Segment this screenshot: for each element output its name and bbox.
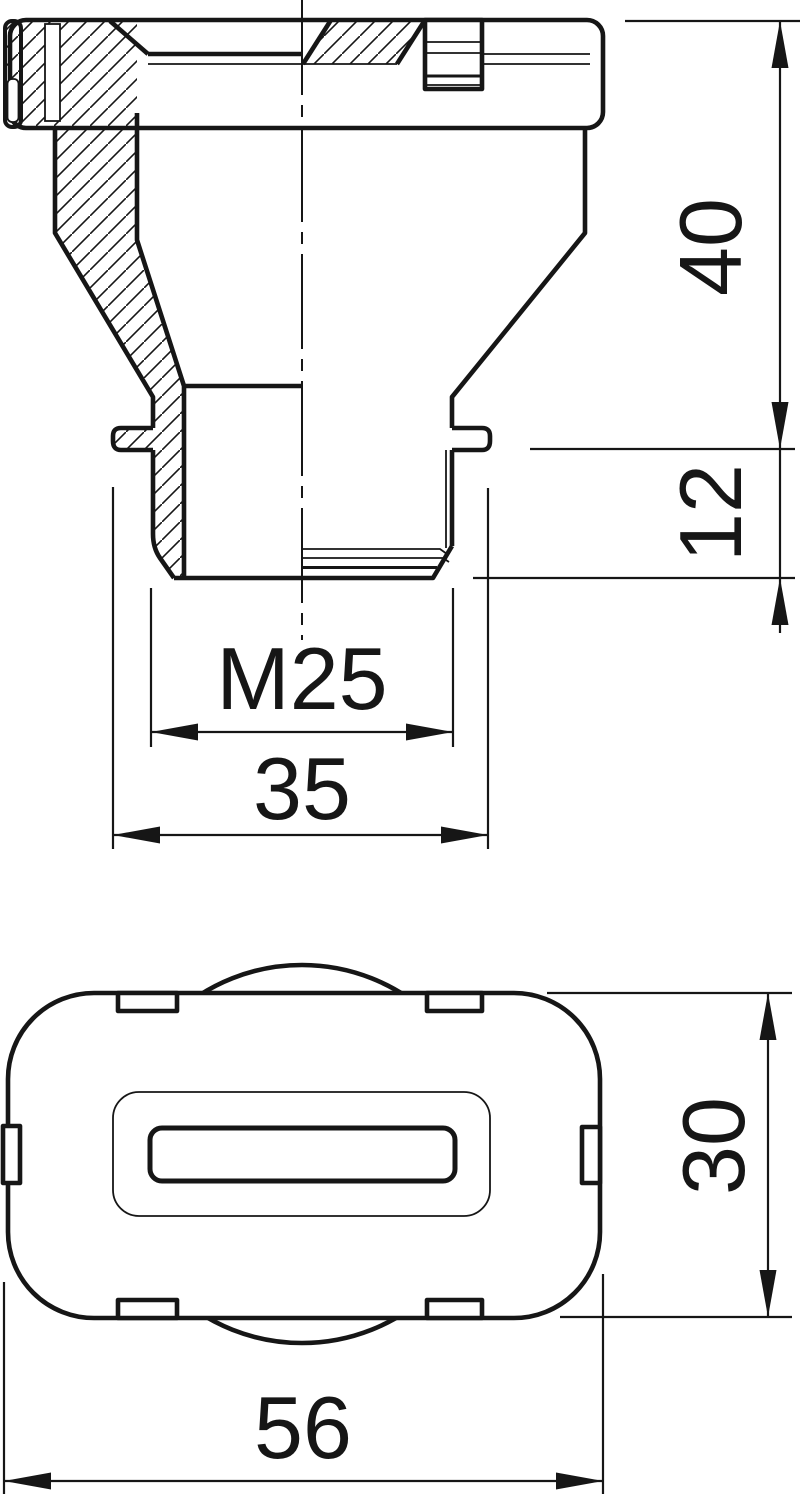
dim-label-flange-width: 35 xyxy=(253,739,351,838)
technical-drawing-page: 40 12 M25 35 xyxy=(0,0,801,1500)
cone-outline-right xyxy=(452,128,585,428)
arrowhead-left xyxy=(4,1473,51,1490)
arrowhead-right xyxy=(441,827,488,844)
thread-runout-line xyxy=(302,549,447,554)
arrowhead-left xyxy=(113,827,160,844)
dim-label-upper-height: 40 xyxy=(661,198,760,296)
latch-tab-bottom-left xyxy=(118,1300,177,1318)
thread-bottom-edge xyxy=(174,546,452,578)
latch-tab-top-left xyxy=(118,993,177,1011)
clip-groove-slot xyxy=(45,24,60,121)
arrowhead-up xyxy=(772,21,789,68)
plan-view xyxy=(3,965,600,1343)
latch-tab-right xyxy=(582,1127,600,1183)
arrowhead-right xyxy=(556,1473,603,1490)
latch-tab-left xyxy=(3,1126,20,1183)
dim-label-body-width: 56 xyxy=(254,1378,352,1477)
latch-tab-bottom-right xyxy=(427,1300,482,1318)
latch-window xyxy=(425,20,482,89)
drawing-svg: 40 12 M25 35 xyxy=(0,0,801,1500)
arrowhead-up xyxy=(772,578,789,625)
cone-wall-section-hatch xyxy=(55,128,184,578)
cable-slot-opening xyxy=(150,1128,455,1181)
dim-label-thread-length: 12 xyxy=(661,464,760,562)
cap-wall-section-hatch xyxy=(21,21,137,127)
arrowhead-down xyxy=(760,1270,777,1317)
dim-label-thread-size: M25 xyxy=(216,629,387,728)
side-view-dimensions: 40 12 M25 35 xyxy=(113,21,800,849)
side-section-view xyxy=(5,0,603,640)
arrowhead-down xyxy=(772,402,789,449)
arrowhead-right xyxy=(406,724,453,741)
arrowhead-up xyxy=(760,993,777,1040)
thread-runout-line xyxy=(302,558,449,562)
flange-right xyxy=(452,428,490,450)
latch-tab-top-right xyxy=(427,993,482,1011)
arrowhead-left xyxy=(151,724,198,741)
dim-label-body-height: 30 xyxy=(664,1097,763,1195)
clip-strip-slot xyxy=(8,79,19,122)
